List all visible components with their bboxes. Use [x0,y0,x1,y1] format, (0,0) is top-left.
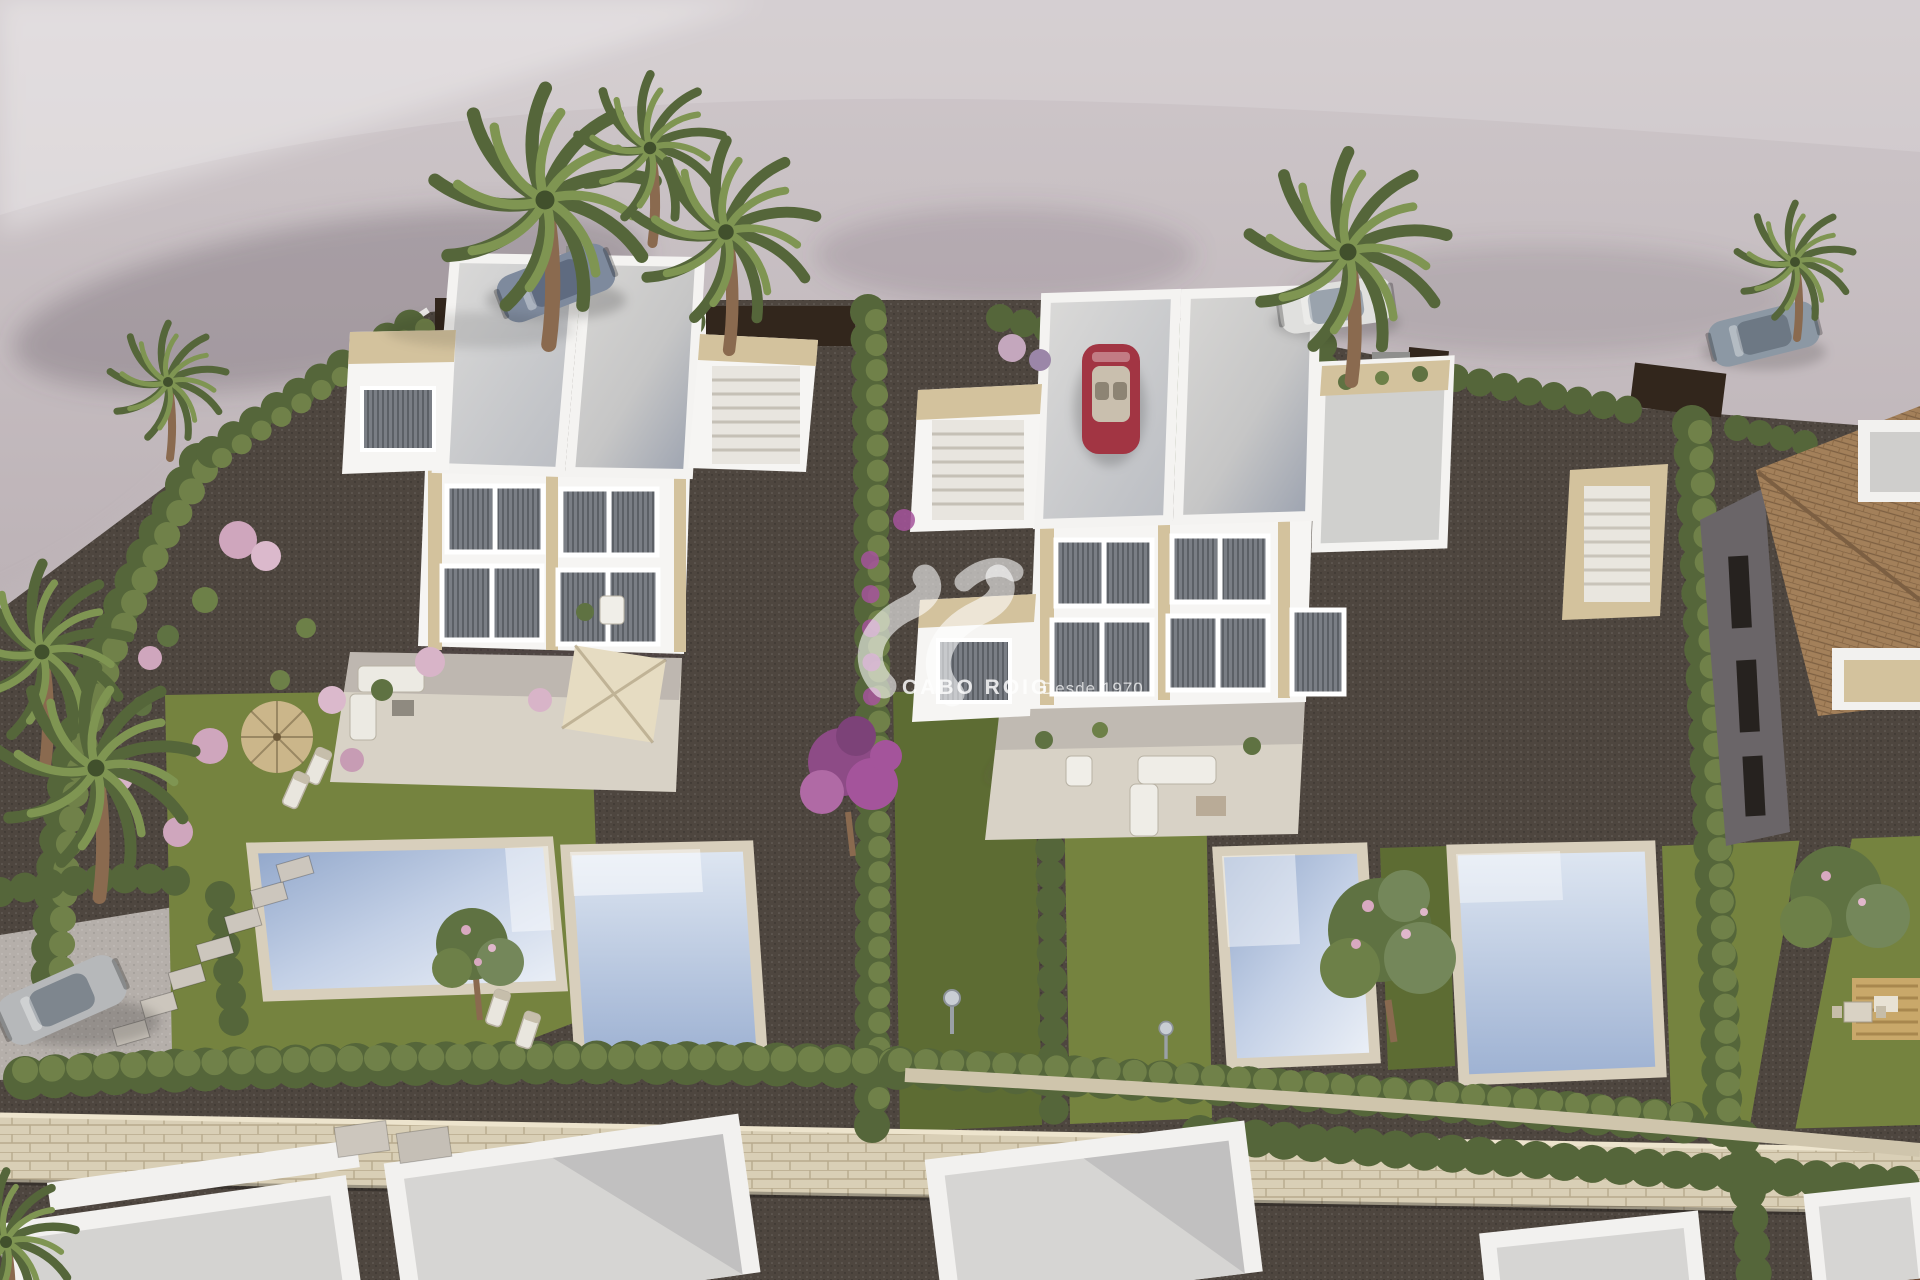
villa-right-roof-stair [910,384,1042,532]
pool-2 [566,846,762,1060]
render-canvas: CABO ROIG Desde 1970 [0,0,1920,1280]
villa-right-roof-terrace [1316,360,1450,548]
pool-4 [1452,846,1661,1080]
villa-left-roof-stair [688,334,818,472]
red-convertible [1082,344,1140,454]
bottom-building [1803,1182,1920,1280]
watermark-tagline: Desde 1970 [1042,679,1144,698]
villa-right-ext-stair [1562,464,1668,620]
villa-left-annex [342,330,456,474]
straw-parasol [241,701,313,773]
watermark-brand: CABO ROIG [902,676,1050,699]
